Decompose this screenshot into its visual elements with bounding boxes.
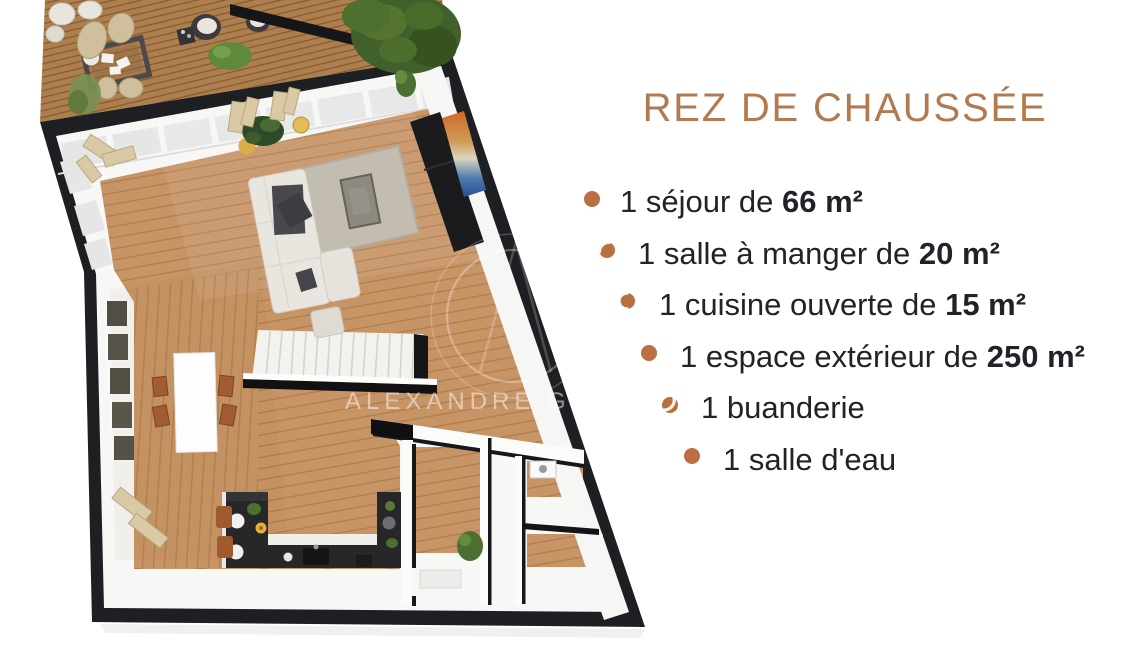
svg-text:ALEXANDRE GE: ALEXANDRE GE — [345, 388, 592, 415]
